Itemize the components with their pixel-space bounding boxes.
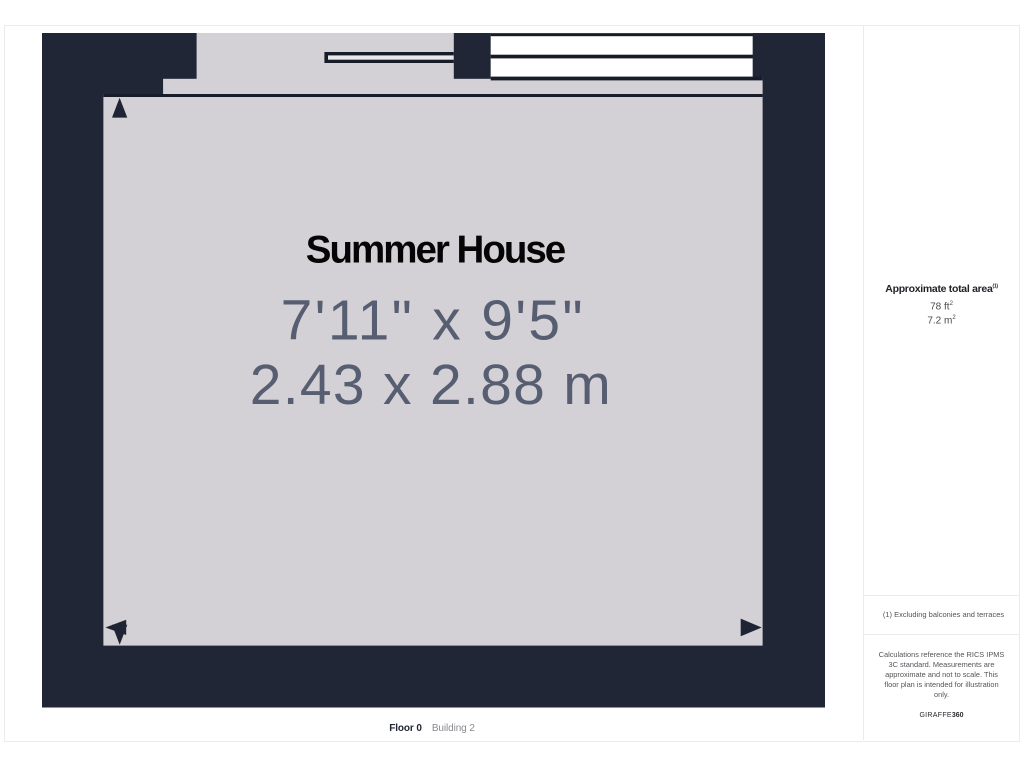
svg-text:2.43 x 2.88 m: 2.43 x 2.88 m: [250, 353, 612, 417]
svg-text:Summer House: Summer House: [306, 228, 566, 271]
svg-text:7'11" x 9'5": 7'11" x 9'5": [281, 289, 585, 353]
